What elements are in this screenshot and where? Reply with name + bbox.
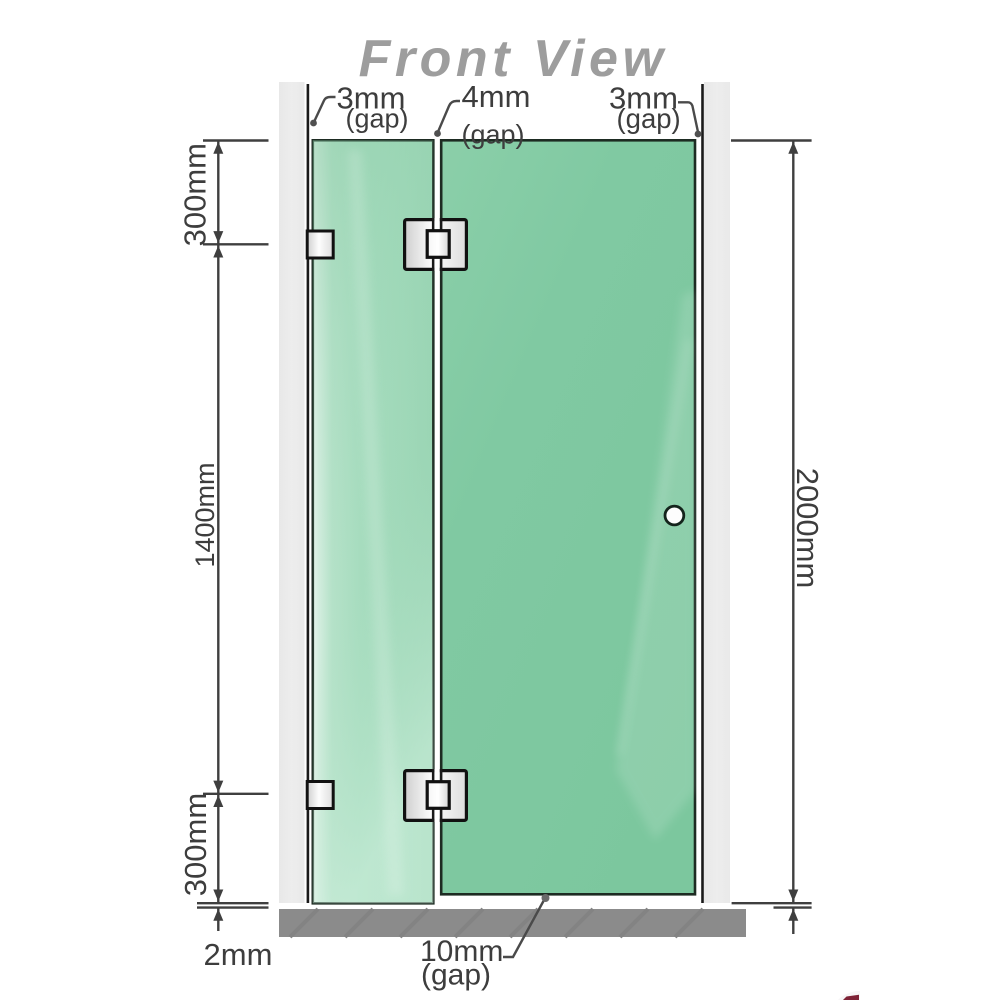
svg-text:(gap): (gap) <box>462 120 525 150</box>
svg-text:300mm: 300mm <box>178 143 213 246</box>
svg-text:300mm: 300mm <box>178 793 213 896</box>
svg-text:2000mm: 2000mm <box>790 468 825 589</box>
svg-text:(gap): (gap) <box>617 103 681 134</box>
svg-text:2mm: 2mm <box>204 937 273 972</box>
svg-text:4mm: 4mm <box>462 79 531 114</box>
svg-text:(gap): (gap) <box>346 104 409 134</box>
svg-text:1400mm: 1400mm <box>190 462 220 567</box>
svg-text:(gap): (gap) <box>421 959 491 992</box>
